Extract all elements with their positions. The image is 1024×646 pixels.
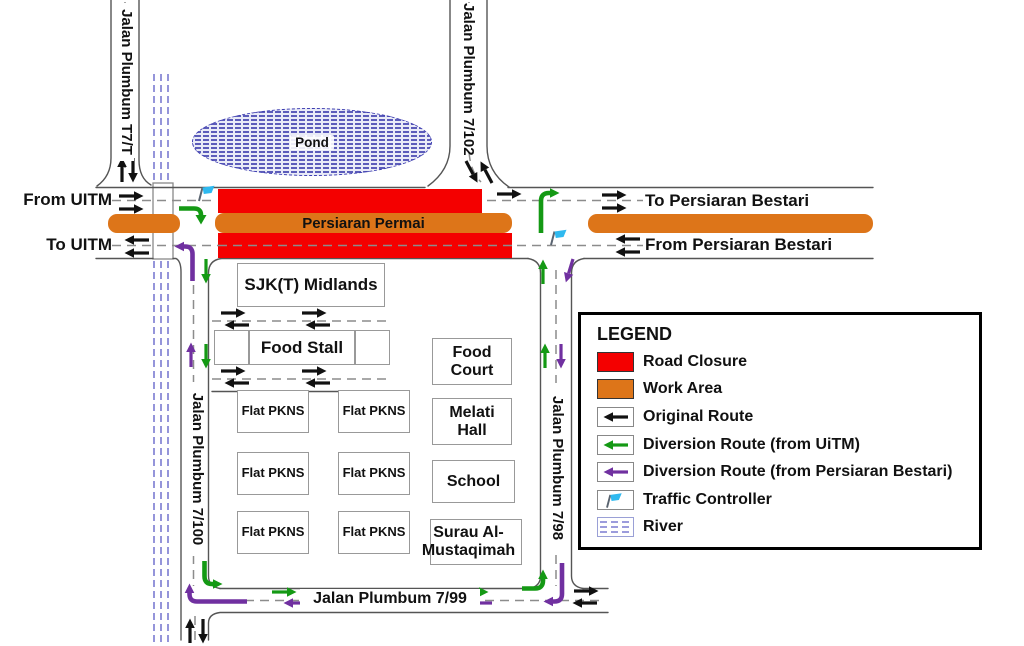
diversion-bestari-swatch [597, 462, 634, 482]
stall-divider [248, 331, 250, 364]
original-route-arrow-icon [602, 190, 627, 200]
from-persiaran-bestari-label: From Persiaran Bestari [645, 235, 832, 255]
original-route-arrow-icon [497, 189, 522, 199]
original-route-arrow-icon [616, 234, 641, 244]
original-route-arrow-icon [225, 378, 250, 388]
from-uitm-label: From UITM [6, 190, 112, 210]
original-route-arrow-icon [306, 378, 331, 388]
building-label: Surau Al-Mustaqimah [416, 524, 521, 560]
traffic-controller-flag-icon [199, 186, 215, 201]
original-route-arrow-icon [616, 247, 641, 257]
original-route-arrow-icon [573, 598, 598, 608]
traffic-controller-swatch [597, 490, 634, 510]
legend-title: LEGEND [597, 321, 979, 348]
building-label: Flat PKNS [343, 404, 406, 419]
legend: LEGEND Road Closure Work Area Original R… [578, 312, 982, 550]
legend-label: Diversion Route (from UiTM) [643, 436, 860, 454]
diversion-uitm-arrow-icon [201, 344, 211, 369]
building-label: Flat PKNS [343, 466, 406, 481]
river-swatch [597, 517, 634, 537]
legend-label: Original Route [643, 408, 753, 426]
building-label: School [447, 473, 500, 491]
legend-label: Work Area [643, 380, 722, 398]
original-route-arrow-icon [221, 308, 246, 318]
road-label-jalan-plumbum-7100: Jalan Plumbum 7/100 [189, 382, 205, 556]
original-route-arrow-icon [125, 235, 150, 245]
legend-item-diversion-uitm: Diversion Route (from UiTM) [597, 431, 979, 459]
legend-item-traffic-controller: Traffic Controller [597, 486, 979, 514]
road-label-jalan-plumbum-7102: Jalan Plumbum 7/102 [460, 3, 476, 153]
diversion-bestari-arrow-icon [556, 344, 566, 369]
original-route-arrow-icon [198, 619, 208, 644]
legend-item-river: River [597, 514, 979, 542]
work-area-swatch [597, 379, 634, 399]
original-route-arrow-icon [302, 366, 327, 376]
building-label: Flat PKNS [242, 525, 305, 540]
road-label-jalan-plumbum-799: Jalan Plumbum 7/99 [300, 589, 480, 608]
original-route-arrow-icon [119, 204, 144, 214]
diversion-bestari-arrow-icon [561, 258, 577, 284]
building-food-court: Food Court [432, 338, 512, 385]
building-flat-pkns-4: Flat PKNS [338, 452, 410, 495]
original-route-swatch [597, 407, 634, 427]
building-sjk-midlands: SJK(T) Midlands [237, 263, 385, 307]
diversion-uitm-arrow-icon [272, 587, 297, 597]
legend-label: Traffic Controller [643, 491, 772, 509]
legend-label: Diversion Route (from Persiaran Bestari) [643, 463, 952, 481]
diversion-uitm-swatch [597, 435, 634, 455]
building-label: Flat PKNS [242, 404, 305, 419]
building-flat-pkns-5: Flat PKNS [237, 511, 309, 554]
building-flat-pkns-6: Flat PKNS [338, 511, 410, 554]
building-label: SJK(T) Midlands [244, 275, 377, 294]
traffic-controller-flag-icon [551, 230, 567, 245]
building-school: School [432, 460, 515, 503]
original-route-arrow-icon [225, 320, 250, 330]
to-uitm-label: To UITM [6, 235, 112, 255]
building-label: Melati Hall [433, 404, 511, 440]
original-route-arrow-icon [574, 586, 599, 596]
legend-item-work-area: Work Area [597, 376, 979, 404]
original-route-arrow-icon [306, 320, 331, 330]
building-label: Flat PKNS [242, 466, 305, 481]
legend-item-diversion-bestari: Diversion Route (from Persiaran Bestari) [597, 458, 979, 486]
diversion-uitm-arrow-icon [201, 259, 211, 284]
original-route-arrow-icon [462, 159, 482, 185]
diversion-uitm-arrow-icon [540, 344, 550, 369]
building-surau: Surau Al-Mustaqimah [430, 519, 522, 565]
building-flat-pkns-1: Flat PKNS [237, 390, 309, 433]
road-closure-swatch [597, 352, 634, 372]
building-label: Flat PKNS [343, 525, 406, 540]
to-persiaran-bestari-label: To Persiaran Bestari [645, 191, 809, 211]
building-melati-hall: Melati Hall [432, 398, 512, 445]
original-route-arrow-icon [125, 248, 150, 258]
building-flat-pkns-2: Flat PKNS [338, 390, 410, 433]
original-route-arrow-icon [119, 191, 144, 201]
original-route-arrow-icon [602, 203, 627, 213]
legend-item-road-closure: Road Closure [597, 348, 979, 376]
legend-item-original-route: Original Route [597, 403, 979, 431]
diversion-uitm-arrow-icon [538, 260, 548, 285]
original-route-arrow-icon [476, 159, 496, 185]
stall-divider [354, 331, 356, 364]
original-route-arrow-icon [221, 366, 246, 376]
road-label-jalan-plumbum-t7t: Jalan Plumbum T7/T [118, 3, 134, 161]
original-route-arrow-icon [302, 308, 327, 318]
building-flat-pkns-3: Flat PKNS [237, 452, 309, 495]
building-food-stall: Food Stall [214, 330, 390, 365]
building-label: Food Stall [259, 338, 345, 357]
original-route-arrow-icon [185, 619, 195, 644]
traffic-diversion-map: Persiaran Permai Pond [0, 0, 1024, 646]
legend-label: River [643, 518, 683, 536]
building-label: Food Court [433, 344, 511, 380]
legend-label: Road Closure [643, 353, 747, 371]
original-route-arrow-icon [128, 158, 138, 183]
original-route-arrow-icon [117, 158, 127, 183]
diversion-bestari-arrow-icon [186, 343, 196, 368]
road-label-jalan-plumbum-798: Jalan Plumbum 7/98 [549, 383, 565, 553]
